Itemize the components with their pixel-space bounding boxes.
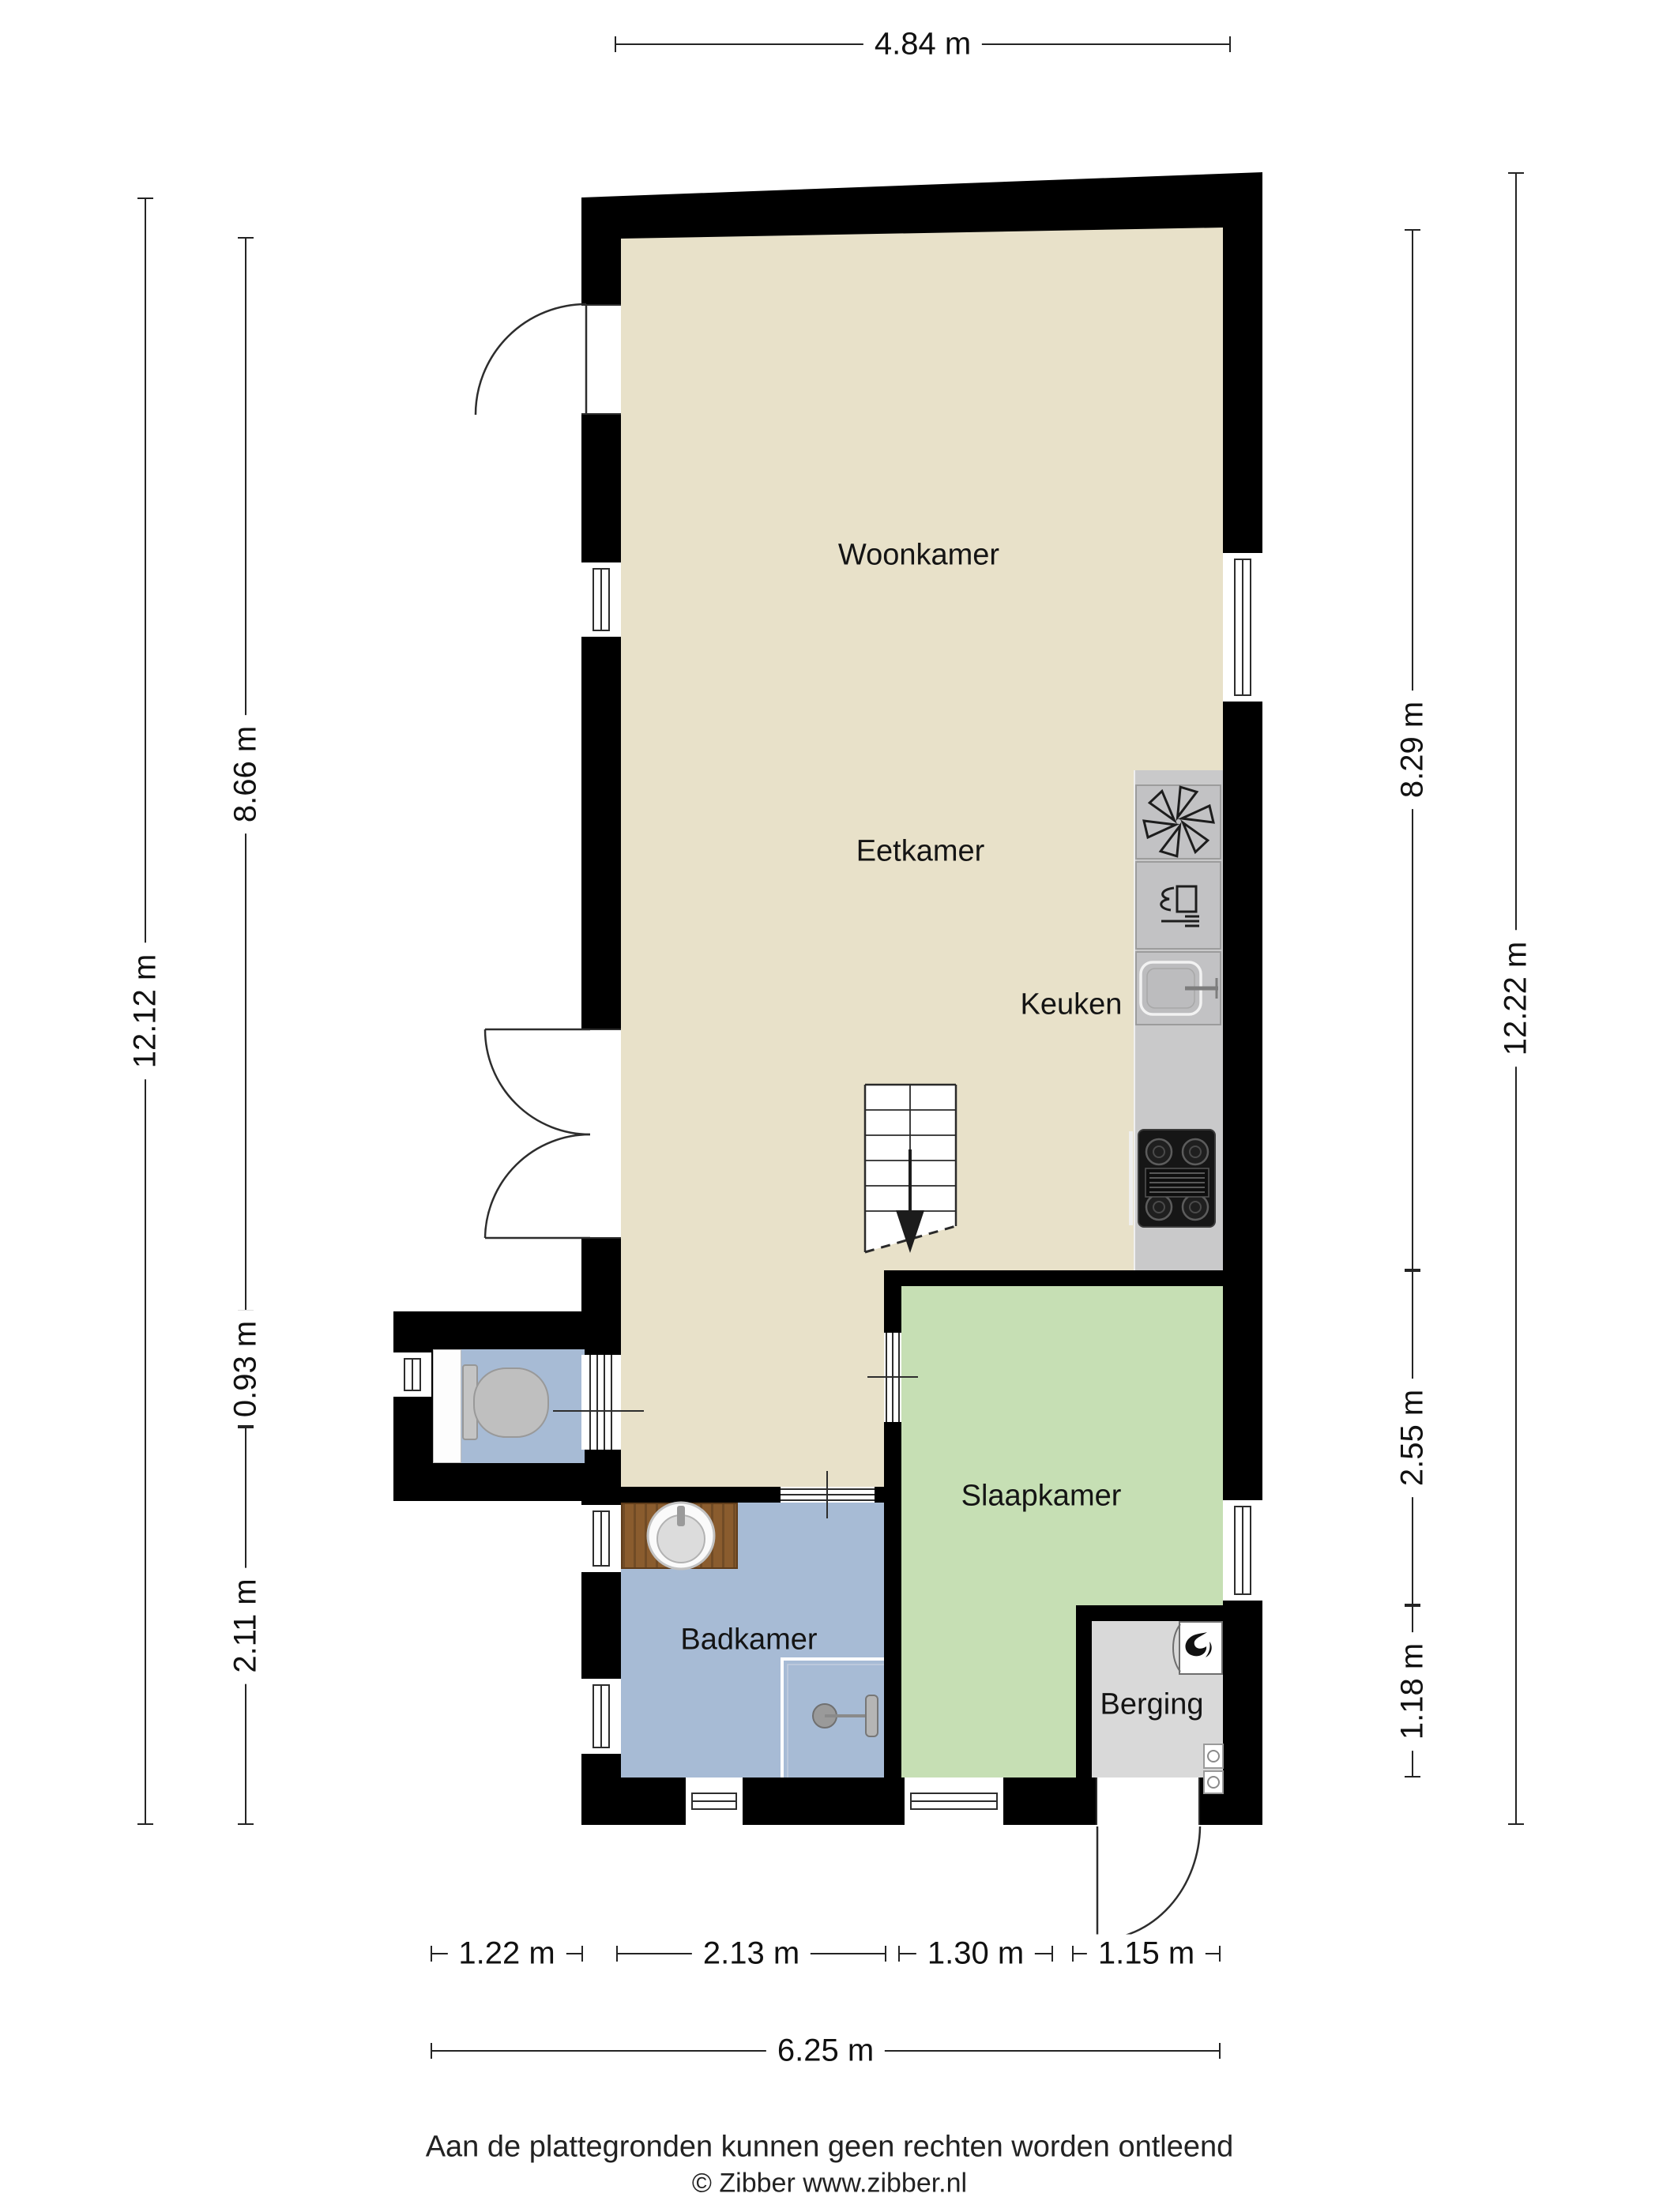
ventilation-icon [1144, 784, 1213, 860]
dim-bottom-seg-3: 1.30 m [898, 1953, 1053, 1954]
dim-bottom-seg-1: 1.22 m [431, 1953, 583, 1954]
double-door-swing-icon [485, 1029, 590, 1238]
boiler-flame-icon [1173, 1624, 1212, 1672]
footer-disclaimer: Aan de plattegronden kunnen geen rechten… [426, 2131, 1234, 2165]
dim-right-total: 12.22 m [1515, 172, 1517, 1825]
room-label-woonkamer: Woonkamer [838, 539, 999, 573]
washbasin-icon [648, 1503, 714, 1569]
dim-right-seg-3: 1.18 m [1412, 1605, 1413, 1777]
appliance-connections-icon [1204, 1744, 1223, 1793]
room-label-keuken: Keuken [1021, 988, 1123, 1022]
toilet-icon [463, 1365, 548, 1439]
room-label-berging: Berging [1100, 1688, 1204, 1722]
entry-door-swing-icon [476, 304, 586, 415]
dim-bottom-seg-4: 1.15 m [1072, 1953, 1221, 1954]
dishwasher-icon [1161, 886, 1199, 926]
stove-icon [1129, 1130, 1215, 1227]
dim-bottom-seg-2: 2.13 m [616, 1953, 886, 1954]
storage-door-swing-icon [1097, 1826, 1200, 1940]
dim-top-width: 4.84 m [615, 43, 1231, 45]
dim-left-seg-2: 0.93 m [245, 1311, 246, 1427]
dim-bottom-total: 6.25 m [431, 2050, 1221, 2052]
dim-right-seg-1: 8.29 m [1412, 229, 1413, 1270]
shower-icon [782, 1659, 884, 1777]
symbols-overlay [0, 0, 1659, 2212]
room-label-eetkamer: Eetkamer [856, 835, 985, 869]
room-label-slaapkamer: Slaapkamer [961, 1480, 1122, 1514]
footer-copyright: © Zibber www.zibber.nl [692, 2169, 967, 2199]
floorplan-page: Woonkamer Eetkamer Keuken Slaapkamer Bad… [0, 0, 1659, 2212]
kitchen-sink-icon [1141, 962, 1218, 1014]
dim-left-seg-3: 2.11 m [245, 1427, 246, 1825]
dim-left-total: 12.12 m [145, 197, 146, 1825]
dim-left-seg-1: 8.66 m [245, 237, 246, 1311]
dim-right-seg-2: 2.55 m [1412, 1270, 1413, 1605]
room-label-badkamer: Badkamer [680, 1623, 817, 1657]
stairs-icon [865, 1085, 956, 1253]
